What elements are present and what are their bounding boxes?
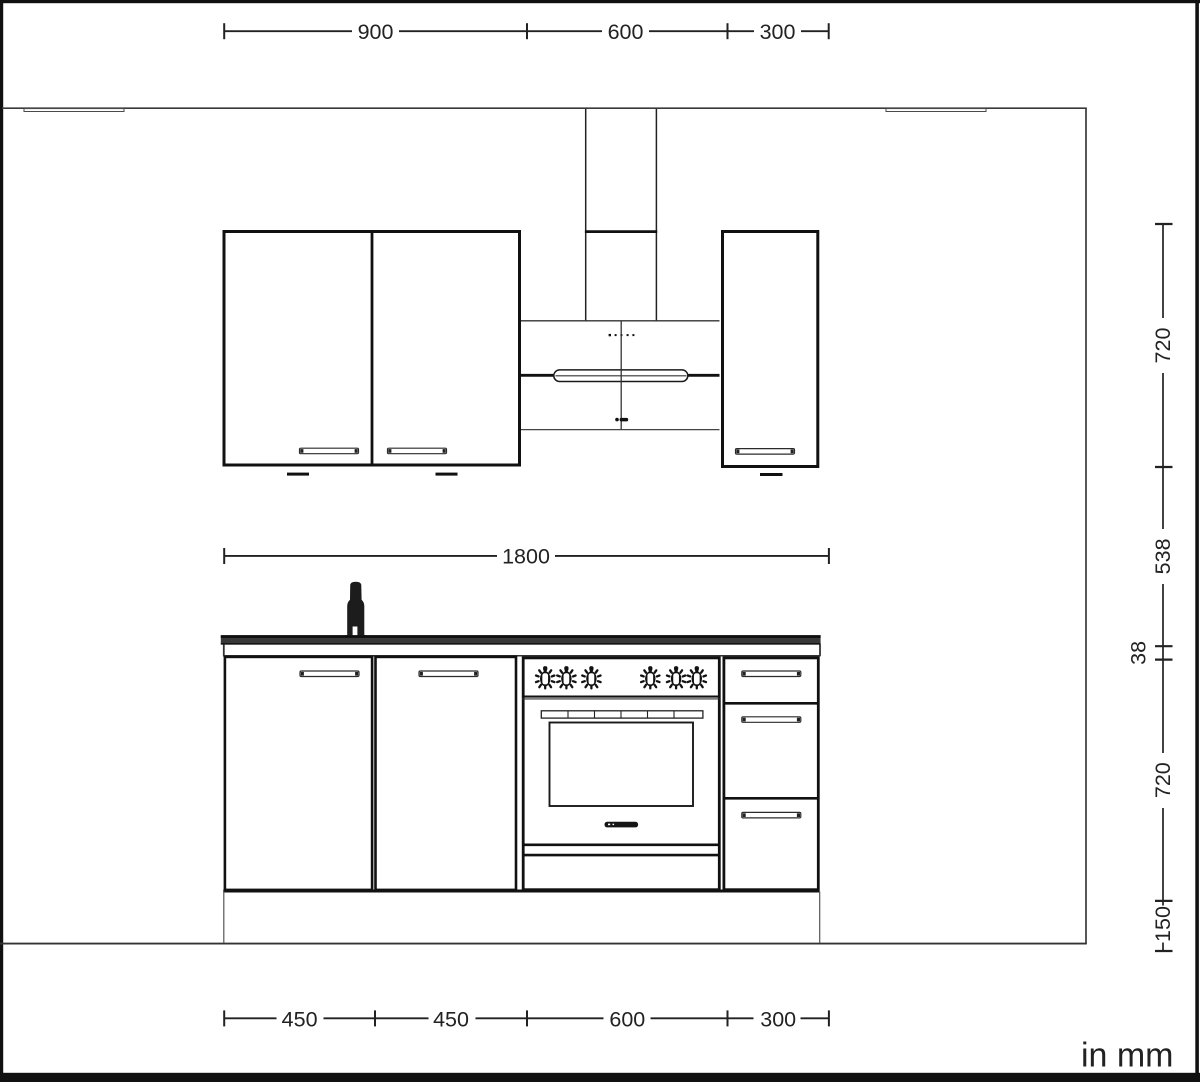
svg-text:300: 300 [760,1007,796,1031]
svg-text:in mm: in mm [1081,1037,1174,1075]
svg-text:600: 600 [608,20,644,44]
svg-text:450: 450 [282,1007,318,1031]
svg-text:600: 600 [609,1007,645,1031]
svg-text:150: 150 [1151,906,1175,942]
svg-text:450: 450 [433,1007,469,1031]
svg-text:538: 538 [1151,538,1175,574]
svg-text:38: 38 [1127,641,1151,665]
svg-text:1800: 1800 [502,545,550,569]
svg-text:300: 300 [760,20,796,44]
svg-text:720: 720 [1151,328,1175,364]
svg-text:900: 900 [358,20,394,44]
svg-text:720: 720 [1151,762,1175,798]
